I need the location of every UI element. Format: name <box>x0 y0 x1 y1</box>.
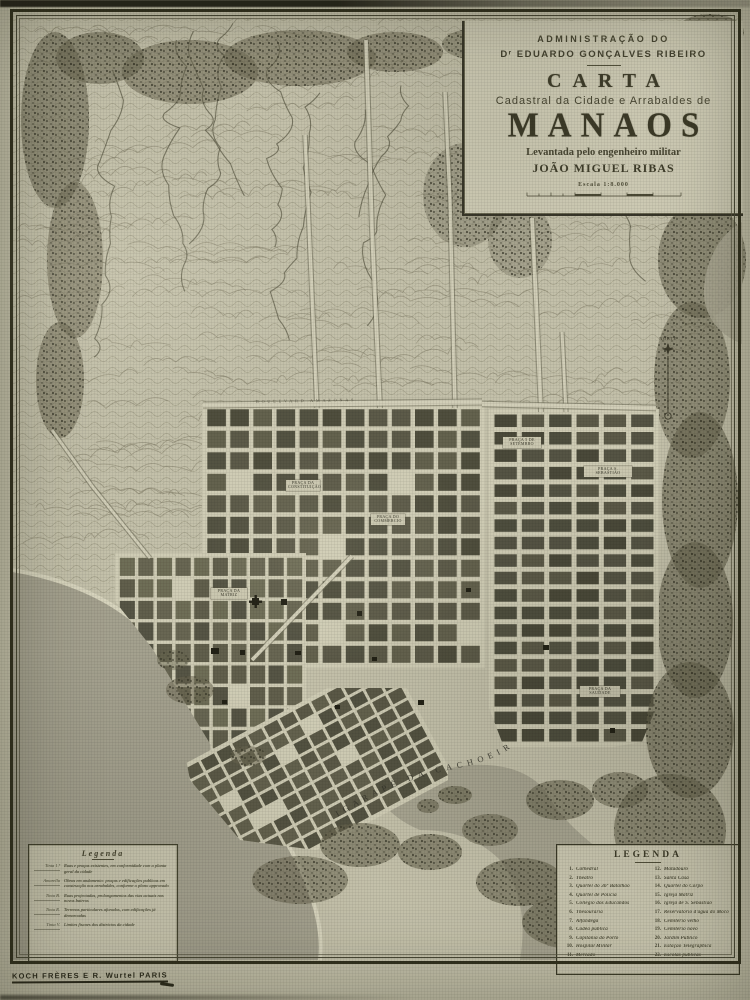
legend-item: 8. Cadêa publica <box>564 927 644 936</box>
legend-right-col2: 12. Matadouro 13. Santa Casa 14. Quartel… <box>652 867 732 962</box>
legend-item: 16. Igreja de S. Sebastião <box>652 901 732 910</box>
legend-item-number: 17. <box>652 910 661 919</box>
legend-entry-desc: Obras em andamento: praças e edificações… <box>64 878 172 889</box>
engineer-name: JOÃO MIGUEL RIBAS <box>464 161 743 176</box>
legend-right-title: LEGENDA <box>564 850 732 860</box>
legend-item-label: Theatro <box>576 876 644 885</box>
legend-item-label: Quartel de Policia <box>576 893 644 902</box>
legend-entry-desc: Ruas e praças existentes, em conformidad… <box>64 863 172 874</box>
legend-item-label: Mercado <box>576 953 644 962</box>
legend-item-number: 18. <box>652 919 661 928</box>
legend-right-col1: 1. Cathedral 2. Theatro 3. Quartel do 36… <box>564 867 644 962</box>
legend-item-label: Cemiterio velho <box>664 919 732 928</box>
legend-item-label: Estação Telegraphica <box>664 944 732 953</box>
legend-item-label: Escolas publicas <box>664 953 732 962</box>
legend-left-entry: Amarella Obras em andamento: praças e ed… <box>34 878 172 889</box>
legend-item-number: 6. <box>564 910 573 919</box>
legend-entry-desc: Limites fiscaes dos districtos da cidade <box>64 922 172 930</box>
legend-item: 14. Quartel do Corpo <box>652 884 732 893</box>
legend-item: 17. Reservatorio d'agua do Mocó <box>652 910 732 919</box>
legend-left-entry: Tinta R. Terrenos particulares aforados,… <box>34 907 172 918</box>
legend-entry-desc: Terrenos particulares aforados, com edif… <box>64 907 172 918</box>
legend-item-number: 19. <box>652 927 661 936</box>
legend-item-number: 1. <box>564 867 573 876</box>
legend-item: 15. Igreja Matriz <box>652 893 732 902</box>
printer-imprint: KOCH FRÈRES E R. Wurtel PARIS <box>12 970 168 983</box>
legend-item-label: Alfandega <box>576 919 644 928</box>
legend-item-label: Cemiterio novo <box>664 927 732 936</box>
legend-item-label: Cadêa publica <box>576 927 644 936</box>
plaza-label: PRAÇA S. SEBASTIÃO <box>584 466 632 477</box>
legend-item-label: Igreja de S. Sebastião <box>664 901 732 910</box>
legend-item: 19. Cemiterio novo <box>652 927 732 936</box>
legend-item: 10. Hospital Militar <box>564 944 644 953</box>
legend-item-number: 22. <box>652 953 661 962</box>
legend-item-label: Matadouro <box>664 867 732 876</box>
legend-item: 5. Collegio dos Educandos <box>564 901 644 910</box>
legend-item-number: 7. <box>564 919 573 928</box>
scan-edge-top <box>0 0 750 7</box>
north-label: NORTE <box>659 336 677 341</box>
map-title: CARTA <box>464 70 743 93</box>
administration-line: ADMINISTRAÇÃO DO <box>464 34 743 44</box>
legend-item: 12. Matadouro <box>652 867 732 876</box>
legend-item: 11. Mercado <box>564 953 644 962</box>
legend-entry-key: Tinta B. <box>34 893 60 901</box>
legend-item-number: 11. <box>564 953 573 962</box>
legend-item-number: 12. <box>652 867 661 876</box>
legend-left-entries: Tinta 1.ª Ruas e praças existentes, em c… <box>34 863 172 930</box>
legend-item: 1. Cathedral <box>564 867 644 876</box>
legend-item: 21. Estação Telegraphica <box>652 944 732 953</box>
surveyor-line: Levantada pelo engenheiro militar <box>464 147 743 158</box>
legend-item-label: Quartel do 36º Batalhão <box>576 884 644 893</box>
scan-edge-bottom <box>0 995 413 1000</box>
legend-item-label: Igreja Matriz <box>664 893 732 902</box>
legend-item: 13. Santa Casa <box>652 876 732 885</box>
legend-entry-key: Tinta R. <box>34 907 60 915</box>
legend-left-entry: Tinta B. Ruas projectadas, prolongamento… <box>34 893 172 904</box>
legend-entry-desc: Ruas projectadas, prolongamentos das via… <box>64 893 172 904</box>
governor-name: Dʳ EDUARDO GONÇALVES RIBEIRO <box>464 49 743 60</box>
scanned-map-page: NORTE BOULEVARD AMAZONAS IGARAPÉ DA CACH… <box>0 0 750 1000</box>
legend-entry-key: Amarella <box>34 878 60 886</box>
legend-item: 9. Capitania do Porto <box>564 936 644 945</box>
legend-item: 6. Thesouraria <box>564 910 644 919</box>
plaza-label: PRAÇA 5 DE SETEMBRO <box>503 437 541 448</box>
legend-item-number: 20. <box>652 936 661 945</box>
legend-item: 18. Cemiterio velho <box>652 919 732 928</box>
legend-item-label: Quartel do Corpo <box>664 884 732 893</box>
legend-item-label: Collegio dos Educandos <box>576 901 644 910</box>
legend-item-number: 10. <box>564 944 573 953</box>
legend-item-label: Hospital Militar <box>576 944 644 953</box>
legend-item-number: 9. <box>564 936 573 945</box>
legend-item-number: 13. <box>652 876 661 885</box>
legend-left-entry: Tinta V. Limites fiscaes dos districtos … <box>34 922 172 930</box>
legend-item-label: Capitania do Porto <box>576 936 644 945</box>
legend-entry-key: Tinta V. <box>34 922 60 930</box>
plaza-label: PRAÇA DA MATRIZ <box>211 588 247 599</box>
legend-item: 3. Quartel do 36º Batalhão <box>564 884 644 893</box>
map-subtitle: Cadastral da Cidade e Arrabaldes de <box>464 95 743 107</box>
title-cartouche: ADMINISTRAÇÃO DO Dʳ EDUARDO GONÇALVES RI… <box>462 21 743 216</box>
legend-item-number: 16. <box>652 901 661 910</box>
legend-item-number: 15. <box>652 893 661 902</box>
legend-item: 7. Alfandega <box>564 919 644 928</box>
legend-item-number: 3. <box>564 884 573 893</box>
legend-item-number: 5. <box>564 901 573 910</box>
legend-right-rule <box>635 862 661 863</box>
legend-entry-key: Tinta 1.ª <box>34 863 60 871</box>
legend-box-right: LEGENDA 1. Cathedral 2. Theatro 3. <box>556 844 740 975</box>
scale-label: Escala 1:8.000 <box>464 182 743 188</box>
legend-item-number: 4. <box>564 893 573 902</box>
legend-item-label: Thesouraria <box>576 910 644 919</box>
legend-box-left: Legenda Tinta 1.ª Ruas e praças existent… <box>28 844 178 962</box>
legend-item-label: Cathedral <box>576 867 644 876</box>
legend-left-entry: Tinta 1.ª Ruas e praças existentes, em c… <box>34 863 172 874</box>
legend-item-number: 2. <box>564 876 573 885</box>
plaza-label: PRAÇA DO COMMERCIO <box>371 514 405 525</box>
legend-left-title: Legenda <box>34 849 172 858</box>
legend-item-number: 21. <box>652 944 661 953</box>
legend-item: 4. Quartel de Policia <box>564 893 644 902</box>
legend-left-rule <box>92 859 114 860</box>
cartouche-rule <box>587 65 621 66</box>
legend-item: 20. Jardim Publico <box>652 936 732 945</box>
legend-item-number: 14. <box>652 884 661 893</box>
plaza-label: PRAÇA DA SAUDADE <box>580 686 620 697</box>
legend-item-label: Santa Casa <box>664 876 732 885</box>
city-name: MANAOS <box>464 107 743 146</box>
legend-item: 2. Theatro <box>564 876 644 885</box>
legend-item-number: 8. <box>564 927 573 936</box>
legend-item-label: Jardim Publico <box>664 936 732 945</box>
plaza-label: PRAÇA DA CONSTITUIÇÃO <box>286 480 320 491</box>
legend-item-label: Reservatorio d'agua do Mocó <box>664 910 732 919</box>
scale-bar <box>519 189 689 201</box>
legend-item: 22. Escolas publicas <box>652 953 732 962</box>
